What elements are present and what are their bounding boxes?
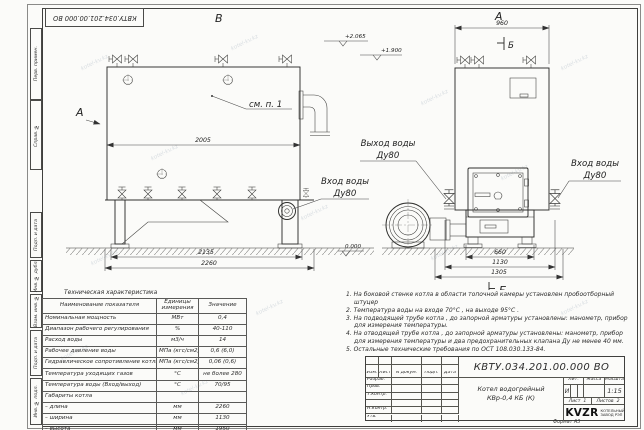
tb-doc-number: КВТУ.034.201.00.000 ВО bbox=[459, 357, 624, 378]
margin-stamp-label: Инв. № подл. bbox=[34, 385, 39, 417]
tb-row-utv: Утв. bbox=[366, 415, 392, 422]
table-row: Габариты котла bbox=[43, 391, 247, 402]
blueprint-sheet: kotel-kv.kz kotel-kv.kz kotel-kv.kz kote… bbox=[0, 0, 644, 430]
note-4: 4. На отводящей трубе котла , до запорно… bbox=[346, 330, 636, 345]
view-b-side: В А см. п. 1 2005 bbox=[75, 12, 402, 271]
control-panel bbox=[510, 78, 536, 98]
tb-mass-label: Масса bbox=[584, 378, 605, 385]
dim-1130: 1130 bbox=[445, 220, 555, 270]
tech-table: Наименование показателя Единицы измерени… bbox=[42, 298, 247, 430]
section-mark-b: Б bbox=[497, 37, 514, 51]
margin-stamp-perv-primen: Перв. примен. bbox=[30, 28, 42, 100]
section-mark-b-text: Б bbox=[508, 41, 514, 51]
dim-2005: 2005 bbox=[107, 137, 300, 145]
tb-col-ndoc: N докум. bbox=[392, 371, 422, 378]
outlet-label-line2: Ду80 bbox=[376, 151, 400, 161]
note-5: 5. Остальные технические требования по О… bbox=[346, 346, 636, 354]
margin-stamp-label: Подп. и дата bbox=[34, 219, 39, 251]
elevation-0000-text: 0.000 bbox=[345, 244, 361, 250]
title-block: Изм. Лист N докум. Подп. Дата Разраб. Пр… bbox=[365, 356, 625, 421]
inlet-flange bbox=[279, 203, 296, 220]
view-b-label: В bbox=[215, 12, 223, 25]
tb-col-data: Дата bbox=[442, 371, 459, 378]
inlet-right-label-line1: Вход воды bbox=[571, 159, 619, 169]
margin-stamp-vzam-inv: Взам. инв. № bbox=[30, 294, 42, 328]
elevation-2065: +2.065 bbox=[324, 34, 368, 46]
note-3: 3. На подводящей трубе котла , до запорн… bbox=[346, 315, 636, 330]
note-1: 1. На боковой стенке котла в области топ… bbox=[346, 291, 636, 306]
label-inlet-water-left: Вход воды Ду80 bbox=[293, 177, 369, 209]
tb-col-izm: Изм. bbox=[366, 371, 379, 378]
elevation-1900: +1.900 bbox=[360, 48, 402, 60]
col-value: Значение bbox=[199, 299, 247, 314]
label-outlet-water: Выход воды Ду80 bbox=[360, 139, 446, 199]
company-name: КОТЕЛЬНЫЙ ЗАВОД РЭП bbox=[600, 409, 624, 418]
margin-stamp-label: Перв. примен. bbox=[34, 46, 39, 81]
margin-stamp-podp-data-1: Подп. и дата bbox=[30, 212, 42, 258]
door-handle bbox=[494, 192, 502, 199]
boiler-drawing: В А см. п. 1 2005 bbox=[42, 8, 636, 290]
tb-lit-label: Лит. bbox=[564, 378, 584, 385]
tb-row-blank bbox=[366, 400, 392, 407]
table-row: Номинальная мощностьМВт0,4 bbox=[43, 314, 247, 325]
tb-row-prov: Пров. bbox=[366, 385, 392, 392]
dim-960-text: 960 bbox=[496, 20, 508, 27]
tb-row-nkontr: Н.контр. bbox=[366, 407, 392, 414]
margin-stamp-inv-dubl: Инв. № дубл. bbox=[30, 260, 42, 292]
blower-fan bbox=[382, 199, 466, 251]
dim-2135-text: 2135 bbox=[198, 249, 214, 256]
tb-product-name: Котел водогрейный КВр-0,4 КБ (К) bbox=[459, 378, 564, 421]
outlet-label-line1: Выход воды bbox=[361, 139, 416, 149]
dim-1130-text: 1130 bbox=[492, 259, 508, 266]
tb-row-tkontr: Т.контр. bbox=[366, 393, 392, 400]
outlet-elbow bbox=[299, 91, 330, 136]
tb-col-list: Лист bbox=[379, 371, 392, 378]
margin-stamp-label: Взам. инв. № bbox=[34, 295, 39, 327]
table-row: – ширинамм1130 bbox=[43, 413, 247, 424]
col-units: Единицы измерения bbox=[157, 299, 199, 314]
inlet-left-label-line2: Ду80 bbox=[333, 189, 357, 199]
dim-1305-text: 1305 bbox=[491, 269, 507, 276]
table-row: Температура воды (Вход/выход)°С70/95 bbox=[43, 380, 247, 391]
table-row: Рабочее давление водыМПа (кгс/см2)0,6 (6… bbox=[43, 347, 247, 358]
tb-col-podp: Подп. bbox=[422, 371, 442, 378]
format-label: Формат А3 bbox=[553, 420, 580, 425]
tech-table-title: Техническая характеристика bbox=[64, 289, 157, 296]
tb-sheet: Лист 1 bbox=[564, 398, 592, 405]
table-row: – высотамм1950 bbox=[43, 424, 247, 430]
view-direction-a: А bbox=[75, 106, 100, 124]
view-a-arrow-label: А bbox=[75, 106, 84, 119]
product-line1: Котел водогрейный bbox=[459, 385, 563, 394]
product-line2: КВр-0,4 КБ (К) bbox=[459, 394, 563, 403]
tb-scale-value: 1:15 bbox=[605, 385, 624, 398]
section-view-b-label: Б bbox=[489, 282, 507, 290]
base-frame bbox=[464, 210, 536, 248]
margin-stamp-podp-data-2: Подп. и дата bbox=[30, 330, 42, 376]
dim-960: 960 bbox=[455, 20, 549, 64]
table-row: Диапазон рабочего регулирования%40-110 bbox=[43, 325, 247, 336]
tb-row-razrab: Разраб. bbox=[366, 378, 392, 385]
table-row: Расход водым3/ч14 bbox=[43, 336, 247, 347]
dim-2260-text: 2260 bbox=[201, 260, 217, 267]
note-2: 2. Температура воды на входе 70°С , на в… bbox=[346, 307, 636, 315]
tb-scale-label: Масштаб bbox=[605, 378, 624, 385]
dim-660-text: 660 bbox=[494, 249, 506, 256]
logo-text: KVZR bbox=[565, 407, 598, 419]
section-view-b-text: Б bbox=[499, 284, 507, 290]
inlet-right-label-line2: Ду80 bbox=[583, 171, 607, 181]
table-row: – длинамм2260 bbox=[43, 402, 247, 413]
outlet-valve bbox=[444, 190, 454, 206]
tech-table-header: Наименование показателя Единицы измерени… bbox=[43, 299, 247, 314]
callout-see-note-1: см. п. 1 bbox=[211, 95, 292, 110]
margin-stamp-label: Инв. № дубл. bbox=[34, 260, 39, 292]
tb-sheets: Листов 2 bbox=[592, 398, 624, 405]
technical-notes: 1. На боковой стенке котла в области топ… bbox=[346, 291, 636, 354]
margin-stamp-label: Подп. и дата bbox=[34, 337, 39, 369]
inlet-left-label-line1: Вход воды bbox=[321, 177, 369, 187]
inlet-valve bbox=[550, 190, 560, 206]
table-row: Температура уходящих газов°Сне более 280 bbox=[43, 369, 247, 380]
label-inlet-water-right: Вход воды Ду80 bbox=[558, 159, 621, 198]
margin-stamp-inv-podl: Инв. № подл. bbox=[30, 378, 42, 425]
boiler-supports bbox=[111, 200, 302, 248]
table-row: Гидравлическое сопротивление котлаМПа (к… bbox=[43, 358, 247, 369]
tb-lit-value: И bbox=[564, 385, 571, 398]
elevation-2065-text: +2.065 bbox=[345, 34, 366, 40]
dim-2005-text: 2005 bbox=[195, 137, 211, 144]
elevation-1900-text: +1.900 bbox=[381, 48, 402, 54]
col-parameter: Наименование показателя bbox=[43, 299, 157, 314]
callout-text: см. п. 1 bbox=[249, 100, 282, 110]
margin-stamp-sprav-no: Справ. № bbox=[30, 100, 42, 170]
margin-stamp-label: Справ. № bbox=[34, 124, 39, 147]
